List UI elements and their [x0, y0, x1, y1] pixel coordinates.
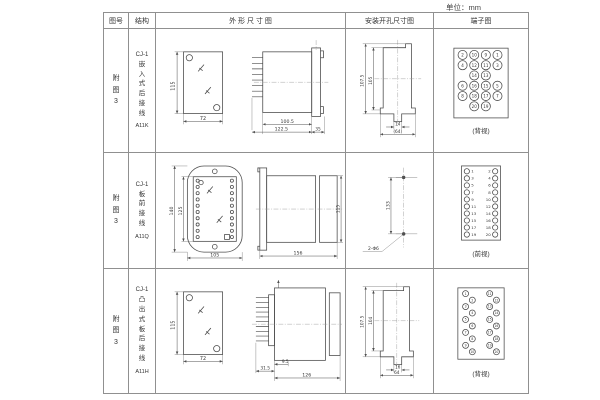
model-label: CJ-1 — [136, 182, 149, 188]
svg-text:12: 12 — [486, 204, 491, 209]
structure-code: A11H — [135, 369, 148, 375]
dim-pin-depth: 31.5 — [260, 366, 270, 372]
svg-text:12: 12 — [472, 63, 478, 68]
svg-text:15: 15 — [471, 218, 476, 223]
svg-text:18: 18 — [472, 94, 478, 99]
svg-text:3: 3 — [465, 305, 467, 309]
col-header-terminal: 端子图 — [434, 13, 528, 29]
outline-svg-row2: 140 125 105 156 115 — [158, 156, 344, 266]
svg-text:17: 17 — [483, 94, 489, 99]
mount-hole-icon — [186, 295, 192, 301]
svg-text:15: 15 — [483, 83, 489, 88]
view-label: (前视) — [472, 248, 489, 258]
dim-outer-height: 107.5 — [359, 74, 365, 86]
dim-front-inner-height: 125 — [177, 206, 183, 215]
dim-front-width: 105 — [210, 252, 219, 258]
svg-text:4: 4 — [461, 63, 464, 68]
svg-text:10: 10 — [472, 52, 478, 57]
dim-outer-height: 107.5 — [359, 315, 365, 327]
svg-text:7: 7 — [471, 190, 474, 195]
svg-text:11: 11 — [483, 63, 489, 68]
terminal-dot-column — [196, 179, 199, 239]
dim-hole-spacing: 133 — [385, 201, 391, 210]
hole-callout: 2-Φ6 — [368, 246, 379, 252]
outline-drawing-row3: 115 72 31.5 9.5 126 — [156, 269, 346, 393]
svg-text:18: 18 — [494, 337, 498, 341]
svg-text:10: 10 — [486, 197, 491, 202]
fig-no-text: 附图3 — [112, 193, 121, 228]
svg-text:8: 8 — [461, 94, 464, 99]
svg-text:10: 10 — [470, 350, 474, 354]
dim-front-width: 72 — [199, 356, 205, 362]
dim-body-offset: 9.5 — [281, 359, 288, 365]
fig-no-row2: 附图3 — [104, 153, 129, 269]
svg-text:5: 5 — [465, 318, 467, 322]
structure-row3: CJ-1 凸出式板后接线 A11H — [129, 269, 156, 393]
dim-opening-width: (64) — [393, 129, 402, 135]
mount-hole-icon — [213, 104, 219, 110]
svg-text:14: 14 — [486, 211, 491, 216]
svg-text:19: 19 — [483, 104, 489, 109]
install-drawing-row2: 133 2-Φ6 — [346, 153, 434, 269]
install-svg-row3: 107.5 104 16 64 — [347, 277, 433, 386]
dim-slot-width: 14 — [395, 122, 401, 127]
structure-code: A11Q — [135, 234, 149, 240]
screw-mark-icon — [204, 328, 210, 335]
mount-hole-icon — [213, 345, 219, 351]
dim-opening-width: 64 — [394, 369, 400, 375]
install-svg-row2: 133 2-Φ6 — [347, 156, 433, 265]
svg-text:2: 2 — [471, 298, 473, 302]
structure-desc: 凸出式板后接线 — [138, 295, 146, 363]
svg-text:1: 1 — [496, 52, 499, 57]
structure-row1: CJ-1 嵌入式后接线 A11K — [129, 29, 156, 153]
svg-text:14: 14 — [472, 73, 478, 78]
svg-text:16: 16 — [472, 83, 478, 88]
svg-text:17: 17 — [471, 225, 476, 230]
model-label: CJ-1 — [136, 52, 149, 58]
keyway-mark — [224, 234, 229, 239]
svg-text:2: 2 — [461, 52, 464, 57]
svg-text:3: 3 — [471, 176, 474, 181]
terminal-block — [268, 295, 274, 346]
dim-side-total: 122.5 — [274, 126, 287, 132]
col-header-outline: 外 形 尺 寸 图 — [156, 13, 346, 29]
screw-mark-icon — [198, 64, 204, 71]
fig-no-text: 附图3 — [112, 314, 121, 349]
structure-row2: CJ-1 板前接线 A11Q — [129, 153, 156, 269]
col-header-structure: 结构 — [129, 13, 156, 29]
terminal-svg-row2: 1234567891011121314151617181920 — [455, 163, 507, 245]
svg-text:14: 14 — [494, 311, 498, 315]
svg-text:16: 16 — [486, 218, 491, 223]
fig-no-row1: 附图3 — [104, 29, 129, 153]
terminal-svg-row1: 2109141211314136161558181772019 — [450, 46, 512, 122]
svg-text:9: 9 — [485, 52, 488, 57]
fig-no-text: 附图3 — [112, 73, 121, 108]
outline-drawing-row1: 115 72 100.5 122.5 35 — [156, 29, 346, 153]
svg-text:5: 5 — [471, 183, 474, 188]
structure-desc: 板前接线 — [138, 190, 146, 229]
dim-front-height: 115 — [170, 81, 176, 90]
svg-text:3: 3 — [496, 63, 499, 68]
svg-text:1: 1 — [465, 292, 467, 296]
terminal-cell-row2: 1234567891011121314151617181920 (前视) — [434, 153, 528, 269]
dim-front-outer-height: 140 — [169, 206, 175, 215]
col-header-install: 安装开孔尺寸图 — [346, 13, 434, 29]
flange-outline — [187, 165, 242, 251]
svg-text:16: 16 — [494, 324, 498, 328]
svg-text:18: 18 — [486, 225, 491, 230]
dim-front-width: 72 — [199, 115, 205, 121]
install-svg-row1: 107.5 105 14 (64) — [347, 36, 433, 145]
svg-text:4: 4 — [488, 176, 491, 181]
svg-text:6: 6 — [461, 83, 464, 88]
outline-svg-row3: 115 72 31.5 9.5 126 — [158, 276, 344, 386]
screw-mark-icon — [216, 215, 222, 222]
svg-text:9: 9 — [471, 197, 474, 202]
svg-text:11: 11 — [471, 204, 476, 209]
fig-no-row3: 附图3 — [104, 269, 129, 393]
screw-hole-icon — [212, 169, 217, 174]
relay-front-body — [193, 176, 236, 241]
mount-hole-icon — [198, 180, 202, 184]
screw-mark-icon — [204, 87, 210, 94]
dim-side-height: 115 — [335, 204, 341, 212]
dim-side-length: 126 — [302, 373, 311, 379]
svg-text:20: 20 — [494, 350, 498, 354]
screw-mark-icon — [206, 186, 212, 193]
svg-text:7: 7 — [465, 331, 467, 335]
svg-text:5: 5 — [496, 83, 499, 88]
svg-text:13: 13 — [488, 305, 492, 309]
svg-text:8: 8 — [488, 190, 491, 195]
svg-text:6: 6 — [488, 183, 491, 188]
screw-mark-icon — [198, 307, 204, 314]
svg-text:2: 2 — [488, 169, 491, 174]
svg-text:11: 11 — [488, 292, 492, 296]
terminal-pins — [255, 298, 268, 341]
install-drawing-row3: 107.5 104 16 64 — [346, 269, 434, 393]
svg-text:1: 1 — [471, 169, 474, 174]
dim-front-height: 115 — [170, 320, 176, 329]
screw-hole-icon — [212, 244, 217, 249]
svg-text:19: 19 — [488, 343, 492, 347]
outline-drawing-row2: 140 125 105 156 115 — [156, 153, 346, 269]
svg-text:13: 13 — [471, 211, 476, 216]
dim-side-body: 100.5 — [280, 118, 293, 124]
terminal-dot-column — [230, 179, 233, 239]
dim-inner-height: 105 — [367, 76, 373, 84]
view-label: (背视) — [472, 368, 489, 378]
structure-desc: 嵌入式后接线 — [138, 60, 146, 119]
terminal-cell-row1: 2109141211314136161558181772019 (背视) — [434, 29, 528, 153]
mount-hole-icon — [186, 54, 192, 60]
install-drawing-row1: 107.5 105 14 (64) — [346, 29, 434, 153]
svg-text:15: 15 — [488, 318, 492, 322]
terminal-pins — [251, 57, 262, 96]
dim-slot-width: 16 — [395, 364, 401, 369]
svg-text:20: 20 — [472, 104, 478, 109]
svg-text:13: 13 — [483, 73, 489, 78]
svg-text:7: 7 — [496, 94, 499, 99]
svg-text:20: 20 — [486, 232, 491, 237]
outline-svg-row1: 115 72 100.5 122.5 35 — [158, 38, 344, 144]
svg-text:19: 19 — [471, 232, 476, 237]
dim-inner-height: 104 — [367, 316, 373, 324]
dim-side-flange: 35 — [315, 126, 321, 132]
terminal-cell-row3: 1234567891011121314151617181920 (背视) — [434, 269, 528, 393]
model-label: CJ-1 — [136, 287, 149, 293]
svg-text:4: 4 — [471, 311, 473, 315]
structure-code: A11K — [135, 123, 148, 129]
svg-text:17: 17 — [488, 331, 492, 335]
view-label: (背视) — [472, 125, 489, 135]
col-header-fig-no: 图号 — [104, 13, 129, 29]
dim-side-length: 156 — [293, 250, 302, 256]
spec-table: 图号 结构 外 形 尺 寸 图 安装开孔尺寸图 端子图 附图3 CJ-1 嵌入式… — [103, 12, 529, 394]
svg-text:6: 6 — [471, 324, 473, 328]
terminal-svg-row3: 1234567891011121314151617181920 — [452, 284, 510, 365]
svg-text:12: 12 — [494, 298, 498, 302]
svg-text:9: 9 — [465, 343, 467, 347]
svg-text:8: 8 — [471, 337, 473, 341]
